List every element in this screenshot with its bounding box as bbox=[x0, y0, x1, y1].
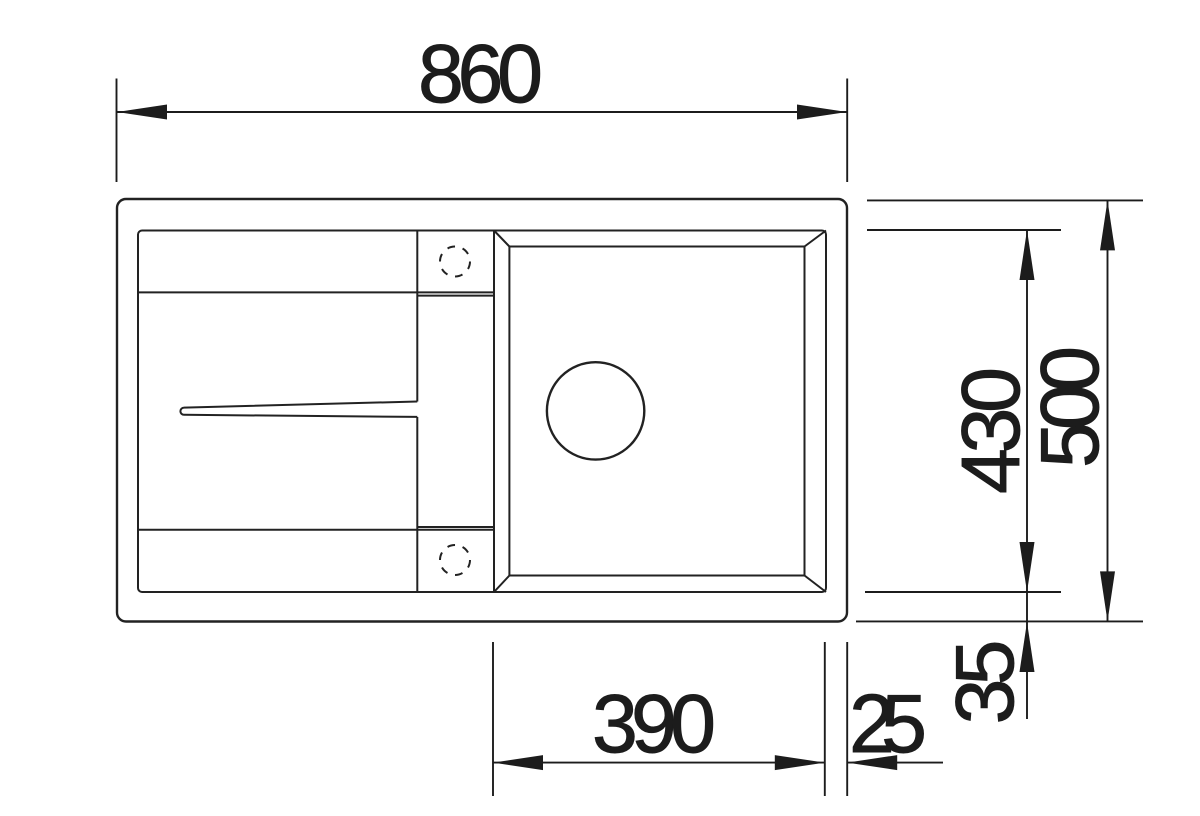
svg-text:500: 500 bbox=[1024, 346, 1116, 468]
svg-text:860: 860 bbox=[418, 28, 543, 120]
svg-text:390: 390 bbox=[592, 678, 716, 770]
svg-text:25: 25 bbox=[849, 678, 927, 770]
svg-text:35: 35 bbox=[939, 640, 1031, 725]
